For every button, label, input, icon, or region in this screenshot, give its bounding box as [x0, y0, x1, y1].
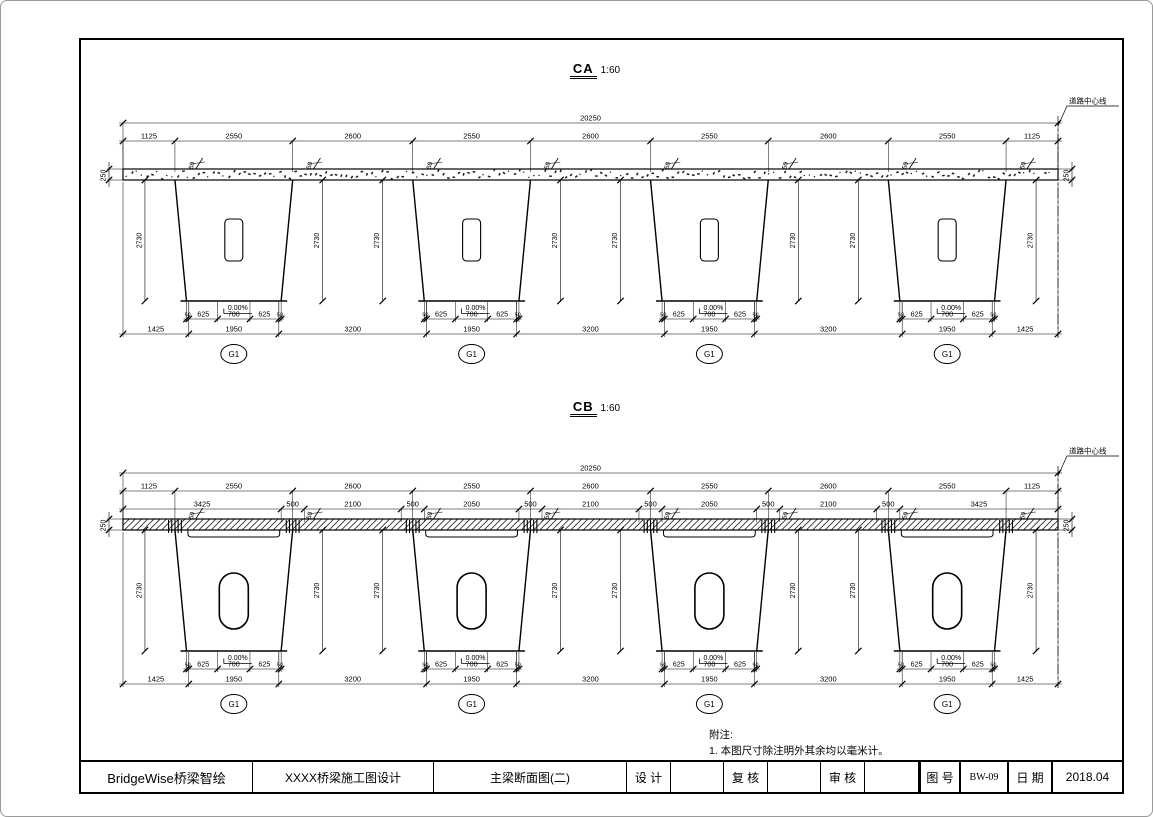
deck-hatch	[335, 519, 346, 530]
girder-void	[219, 573, 248, 629]
girder-void	[463, 219, 481, 261]
deck-hatch	[844, 519, 855, 530]
deck-hatch	[386, 171, 389, 173]
girder-height-dim-label: 2730	[790, 583, 797, 599]
deck-hatch	[482, 174, 483, 175]
deck-hatch	[329, 519, 340, 530]
deck-hatch	[273, 519, 284, 530]
deck-hatch	[1017, 519, 1028, 530]
deck-hatch	[484, 519, 495, 530]
section-ca-name: CA	[570, 61, 597, 79]
girder-tag: G1	[704, 350, 715, 359]
dim-label: 50	[515, 663, 521, 669]
deck-hatch	[835, 175, 838, 177]
deck-hatch	[205, 519, 216, 530]
dim-label: 2550	[463, 482, 480, 491]
deck-hatch	[207, 176, 208, 177]
girder-web	[175, 530, 187, 651]
deck-hatch	[560, 169, 562, 172]
deck-hatch	[901, 173, 904, 176]
deck-hatch	[192, 177, 195, 179]
deck-hatch	[259, 175, 262, 178]
deck-hatch	[565, 176, 568, 179]
deck-hatch	[421, 173, 424, 175]
deck-hatch	[751, 519, 762, 530]
dim-label: 625	[197, 310, 209, 319]
dim-label: 1425	[148, 325, 165, 334]
deck-hatch	[269, 173, 272, 175]
deck-hatch	[478, 519, 489, 530]
deck-hatch	[554, 170, 556, 173]
deck-hatch	[304, 173, 307, 175]
dim-label: 700	[466, 660, 478, 669]
deck-hatch	[213, 171, 215, 174]
dim-label: 3200	[344, 325, 361, 334]
deck-hatch	[431, 174, 434, 177]
deck-hatch	[627, 519, 638, 530]
deck-hatch	[222, 175, 223, 176]
deck-hatch	[490, 519, 501, 530]
dim-label: 2600	[820, 132, 837, 141]
deck-hatch	[814, 176, 815, 177]
deck-hatch	[974, 519, 985, 530]
girder-web	[413, 180, 425, 301]
dim-label: 50	[753, 663, 759, 669]
deck-hatch	[930, 519, 941, 530]
girder-web	[519, 530, 531, 651]
deck-hatch	[317, 519, 328, 530]
deck-hatch	[881, 175, 884, 178]
girder-web	[519, 180, 531, 301]
girder-web	[281, 530, 293, 651]
dim-label: 625	[435, 660, 447, 669]
deck-hatch	[174, 519, 185, 530]
dim-label: 3200	[582, 675, 599, 684]
deck-hatch	[748, 177, 751, 179]
deck-hatch	[615, 177, 618, 179]
dim-label: 50	[422, 313, 428, 319]
deck-hatch	[565, 519, 576, 530]
deck-hatch	[610, 171, 611, 172]
dim-label: 625	[496, 310, 508, 319]
deck-hatch	[794, 176, 797, 178]
deck-hatch	[931, 175, 934, 178]
deck-hatch	[600, 172, 603, 174]
dim-label: 625	[197, 660, 209, 669]
deck-hatch	[800, 519, 811, 530]
girder-tag: G1	[228, 700, 239, 709]
deck-hatch	[340, 174, 342, 177]
haunch-flag	[671, 158, 678, 169]
girder-height-dim-label: 2730	[1028, 583, 1035, 599]
deck-hatch	[186, 519, 197, 530]
deck-hatch	[168, 519, 179, 530]
deck-hatch	[577, 519, 588, 530]
girder-void	[700, 219, 718, 261]
girder-height-dim-label: 2730	[612, 583, 619, 599]
dim-label: 625	[972, 660, 984, 669]
deck-hatch	[345, 174, 347, 177]
girder-height-dim-label: 2730	[1028, 233, 1035, 249]
deck-hatch	[758, 177, 761, 179]
dim-label: 700	[941, 660, 953, 669]
girder-void	[225, 219, 243, 261]
dim-label: 1950	[463, 325, 480, 334]
deck-hatch	[182, 170, 185, 172]
deck-hatch	[666, 177, 669, 179]
deck-hatch	[401, 176, 404, 178]
haunch-flag	[434, 508, 441, 519]
deck-hatch	[143, 519, 154, 530]
deck-hatch	[636, 173, 639, 176]
deck-hatch	[503, 519, 514, 530]
deck-hatch	[538, 175, 539, 176]
deck-hatch	[961, 519, 972, 530]
dim-label: 625	[435, 310, 447, 319]
deck-hatch	[279, 171, 282, 173]
dim-label: 50	[277, 663, 283, 669]
project-cell: XXXX桥梁施工图设计	[253, 762, 434, 792]
deck-hatch	[136, 171, 137, 172]
flange-recess	[901, 530, 993, 537]
drawing-no-cell: BW-09	[961, 762, 1009, 792]
dim-label: 50	[898, 663, 904, 669]
deck-hatch	[124, 519, 135, 530]
dim-label: 625	[258, 660, 270, 669]
girder-web	[888, 180, 900, 301]
deck-hatch	[926, 176, 927, 177]
deck-hatch	[1018, 171, 1021, 173]
deck-hatch	[1033, 173, 1034, 174]
girder-void	[457, 573, 486, 629]
drawing-frame: CA1:60 202501125255026002550260025502600…	[79, 38, 1124, 794]
deck-hatch	[695, 519, 706, 530]
deck-hatch	[385, 519, 396, 530]
deck-hatch	[896, 171, 899, 173]
deck-hatch	[626, 173, 629, 175]
deck-hatch	[162, 519, 173, 530]
deck-hatch	[824, 174, 827, 176]
girder-height-dim-label: 2730	[374, 233, 381, 249]
deck-hatch	[217, 519, 228, 530]
deck-hatch	[670, 519, 681, 530]
deck-hatch	[434, 519, 445, 530]
dim-label: 50	[422, 663, 428, 669]
deck-hatch	[509, 519, 520, 530]
deck-hatch	[197, 173, 200, 176]
deck-hatch	[631, 177, 634, 179]
company-cell: BridgeWise桥梁智绘	[81, 762, 253, 792]
checker-value-cell	[768, 762, 821, 792]
deck-hatch	[426, 175, 427, 176]
deck-hatch	[579, 174, 580, 175]
deck-hatch	[286, 519, 297, 530]
haunch-flag	[909, 158, 916, 169]
deck-hatch	[498, 173, 500, 176]
deck-hatch	[980, 519, 991, 530]
deck-hatch	[224, 519, 235, 530]
dim-label: 700	[703, 660, 715, 669]
deck-hatch	[952, 172, 955, 175]
deck-hatch	[243, 171, 246, 173]
deck-hatch	[671, 176, 674, 178]
deck-hatch	[804, 175, 805, 176]
dim-label: 50	[515, 313, 521, 319]
dim-label: 2550	[225, 482, 242, 491]
deck-hatch	[692, 174, 695, 176]
deck-hatch	[453, 519, 464, 530]
dim-label: 20250	[580, 464, 601, 473]
deck-hatch	[947, 175, 950, 177]
dim-label: 625	[734, 310, 746, 319]
dim-label: 1950	[463, 675, 480, 684]
dim-label: 2550	[463, 132, 480, 141]
deck-hatch	[298, 519, 309, 530]
deck-hatch	[315, 173, 318, 176]
notes: 附注: 1. 本图尺寸除注明外其余均以毫米计。	[709, 727, 889, 760]
girder-web	[888, 530, 900, 651]
girder-height-dim-label: 2730	[850, 233, 857, 249]
deck-hatch	[447, 177, 450, 179]
deck-hatch	[570, 174, 573, 177]
deck-hatch	[151, 174, 154, 176]
deck-hatch	[614, 519, 625, 530]
deck-hatch	[949, 519, 960, 530]
dim-label: 1425	[148, 675, 165, 684]
deck-hatch	[682, 519, 693, 530]
dim-label: 625	[911, 660, 923, 669]
dim-label: 2100	[820, 500, 837, 509]
deck-hatch	[773, 171, 774, 172]
dim-label: 1950	[225, 325, 242, 334]
deck-hatch	[918, 519, 929, 530]
deck-hatch	[236, 519, 247, 530]
deck-hatch	[978, 169, 981, 172]
deck-hatch	[230, 519, 241, 530]
dim-label: 3200	[582, 325, 599, 334]
girder-web	[413, 530, 425, 651]
dim-label: 500	[762, 500, 775, 509]
deck-hatch	[248, 519, 259, 530]
deck-hatch	[458, 171, 461, 174]
deck-hatch	[131, 171, 134, 174]
deck-hatch	[839, 172, 840, 173]
haunch-flag	[551, 158, 558, 169]
dim-label: 50	[898, 313, 904, 319]
drawing-canvas: CA1:60 202501125255026002550260025502600…	[0, 0, 1153, 817]
deck-hatch	[428, 519, 439, 530]
note-item-1: 1. 本图尺寸除注明外其余均以毫米计。	[709, 743, 889, 759]
dim-label: 50	[185, 663, 191, 669]
dim-label: 2550	[939, 132, 956, 141]
deck-hatch	[248, 173, 251, 175]
deck-hatch	[707, 519, 718, 530]
deck-hatch	[233, 170, 236, 173]
dim-label: 1950	[939, 675, 956, 684]
deck-hatch	[228, 175, 231, 178]
deck-hatch	[488, 175, 491, 177]
deck-hatch	[375, 176, 376, 177]
deck-hatch	[372, 519, 383, 530]
deck-hatch	[238, 172, 241, 175]
section-ca-drawing: 2025011252550260025502600255026002550112…	[81, 86, 1122, 376]
deck-hatch	[242, 519, 253, 530]
dim-label: 1125	[1024, 132, 1040, 141]
dim-label: 2600	[582, 132, 599, 141]
dim-label: 3425	[194, 500, 211, 509]
dim-label: 700	[466, 310, 478, 319]
deck-hatch	[354, 519, 365, 530]
girder-tag: G1	[228, 350, 239, 359]
deck-hatch	[957, 176, 960, 178]
girder-void	[938, 219, 956, 261]
deck-hatch	[968, 173, 971, 176]
flange-recess	[426, 530, 518, 537]
deck-hatch	[310, 173, 312, 176]
deck-hatch	[502, 172, 505, 175]
dim-label: 3200	[820, 325, 837, 334]
girder-height-dim-label: 2730	[552, 233, 559, 249]
deck-hatch	[713, 519, 724, 530]
deck-hatch	[829, 174, 832, 176]
girder-tag: G1	[466, 350, 477, 359]
dim-label: 500	[286, 500, 299, 509]
deck-hatch	[677, 171, 680, 174]
deck-hatch	[595, 175, 598, 177]
dim-label: 700	[228, 660, 240, 669]
deck-hatch	[779, 177, 782, 179]
deck-hatch	[876, 172, 879, 174]
deck-hatch	[633, 519, 644, 530]
deck-hatch	[396, 176, 399, 179]
deck-hatch	[602, 519, 613, 530]
deck-hatch	[855, 171, 856, 172]
reviewer-value-cell	[865, 762, 918, 792]
deck-hatch	[992, 519, 1003, 530]
haunch-flag	[909, 508, 916, 519]
dim-label: 1125	[141, 482, 157, 491]
deck-hatch	[973, 174, 976, 177]
dim-label: 50	[990, 663, 996, 669]
deck-hatch	[416, 519, 427, 530]
dim-label: 50	[277, 313, 283, 319]
dim-label: 625	[673, 660, 685, 669]
haunch-flag	[789, 508, 796, 519]
dim-label: 2600	[820, 482, 837, 491]
deck-hatch	[596, 519, 607, 530]
centerline-label: 道路中心线	[1069, 96, 1107, 106]
dim-label: 2550	[225, 132, 242, 141]
deck-hatch	[820, 174, 823, 176]
deck-hatch	[799, 171, 802, 174]
deck-hatch	[125, 176, 126, 177]
deck-hatch	[1013, 173, 1016, 176]
dim-label: 50	[660, 663, 666, 669]
deck-hatch	[472, 519, 483, 530]
girder-height-dim-label: 2730	[552, 583, 559, 599]
section-cb-scale: 1:60	[601, 403, 620, 414]
deck-hatch	[412, 172, 415, 174]
dim-label: 2600	[582, 482, 599, 491]
deck-hatch	[463, 173, 465, 176]
dim-label: 1425	[1017, 675, 1034, 684]
sheet-title-cell: 主梁断面图(二)	[434, 762, 627, 792]
deck-hatch	[255, 519, 266, 530]
deck-hatch	[467, 172, 470, 174]
deck-hatch	[905, 171, 908, 174]
haunch-flag	[196, 508, 203, 519]
deck-hatch	[868, 519, 879, 530]
dim-label: 500	[644, 500, 657, 509]
haunch-flag	[789, 158, 796, 169]
dim-label: 50	[185, 313, 191, 319]
deck-hatch	[571, 519, 582, 530]
deck-hatch	[702, 170, 703, 171]
deck-hatch	[325, 171, 328, 174]
dim-label: 700	[703, 310, 715, 319]
girder-void	[933, 573, 962, 629]
flange-recess	[664, 530, 756, 537]
dim-label: 500	[406, 500, 419, 509]
deck-hatch	[856, 519, 867, 530]
centerline-leader	[1058, 456, 1119, 476]
sheet-title: 主梁断面图(二)	[490, 769, 570, 786]
deck-hatch	[546, 519, 557, 530]
deck-hatch	[1044, 172, 1047, 174]
girder-tag: G1	[942, 700, 953, 709]
deck-hatch	[267, 519, 278, 530]
deck-hatch	[899, 519, 910, 530]
dim-label: 700	[228, 310, 240, 319]
girder-web	[995, 180, 1007, 301]
dim-label: 2100	[344, 500, 361, 509]
deck-thickness-label: 250	[1064, 170, 1071, 182]
deck-hatch	[831, 519, 842, 530]
deck-hatch	[1048, 520, 1058, 530]
deck-hatch	[437, 169, 439, 172]
deck-hatch	[924, 519, 935, 530]
deck-hatch	[744, 519, 755, 530]
haunch-flag	[671, 508, 678, 519]
deck-hatch	[1048, 172, 1049, 173]
deck-hatch	[608, 519, 619, 530]
deck-thickness-label: 250	[101, 520, 108, 532]
deck-hatch	[211, 519, 222, 530]
dim-label: 2050	[701, 500, 718, 509]
dim-label: 1950	[701, 675, 718, 684]
deck-hatch	[442, 173, 445, 176]
dim-label: 1125	[1024, 482, 1040, 491]
deck-hatch	[982, 170, 983, 171]
dim-label: 2550	[701, 132, 718, 141]
deck-hatch	[988, 177, 991, 179]
deck-hatch	[875, 519, 886, 530]
deck-hatch	[837, 519, 848, 530]
deck-hatch	[149, 519, 160, 530]
deck-hatch	[549, 175, 552, 177]
deck-hatch	[1042, 519, 1053, 530]
deck-hatch	[862, 519, 873, 530]
dim-label: 500	[882, 500, 895, 509]
deck-hatch	[292, 519, 303, 530]
deck-hatch	[465, 519, 476, 530]
deck-hatch	[860, 172, 861, 173]
deck-hatch	[806, 519, 817, 530]
deck-hatch	[720, 519, 731, 530]
girder-web	[995, 530, 1007, 651]
dim-label: 1950	[701, 325, 718, 334]
deck-hatch	[528, 177, 529, 178]
